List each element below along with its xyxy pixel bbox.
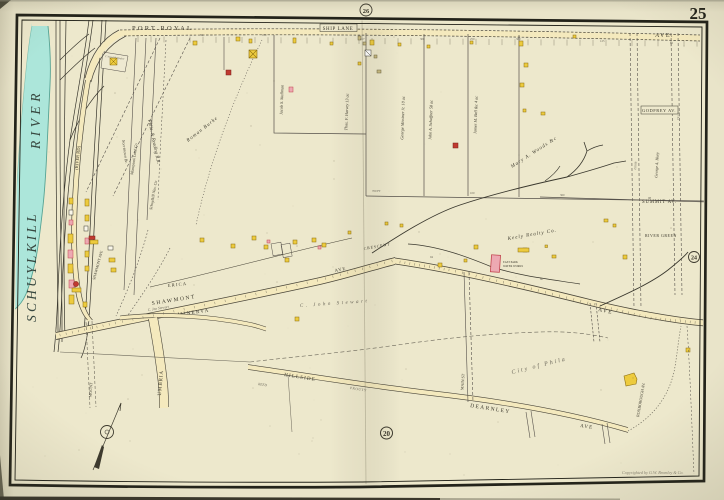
svg-text:250: 250 [470, 37, 475, 41]
svg-text:Copyrighted by G.W. Bromley &: Copyrighted by G.W. Bromley & Co. [622, 470, 684, 475]
svg-text:WATER WORKS: WATER WORKS [503, 265, 524, 268]
svg-text:RIVER: RIVER [28, 89, 43, 150]
svg-text:100: 100 [470, 191, 475, 195]
svg-text:250.88: 250.88 [633, 161, 638, 170]
svg-text:86: 86 [200, 33, 204, 37]
svg-text:94: 94 [430, 255, 434, 259]
svg-text:MOUNT: MOUNT [87, 382, 93, 398]
svg-text:SCHUYLKILL: SCHUYLKILL [24, 211, 39, 322]
svg-text:300: 300 [420, 37, 425, 41]
svg-text:RIVER GREEN: RIVER GREEN [645, 233, 677, 238]
svg-text:125: 125 [600, 39, 605, 43]
svg-text:92: 92 [670, 41, 674, 45]
svg-text:GODFREY AV.: GODFREY AV. [642, 108, 676, 113]
svg-text:360: 360 [560, 193, 565, 197]
svg-text:EAST PARK: EAST PARK [503, 261, 518, 264]
svg-text:98: 98 [648, 196, 652, 200]
svg-text:100: 100 [262, 33, 267, 37]
svg-text:360: 360 [516, 37, 521, 41]
svg-text:PORT ROYAL: PORT ROYAL [132, 25, 193, 32]
svg-text:60: 60 [540, 277, 544, 281]
svg-text:Jacob S. Stallman: Jacob S. Stallman [278, 85, 284, 115]
svg-text:24: 24 [691, 256, 697, 262]
svg-text:193.42: 193.42 [676, 111, 681, 120]
